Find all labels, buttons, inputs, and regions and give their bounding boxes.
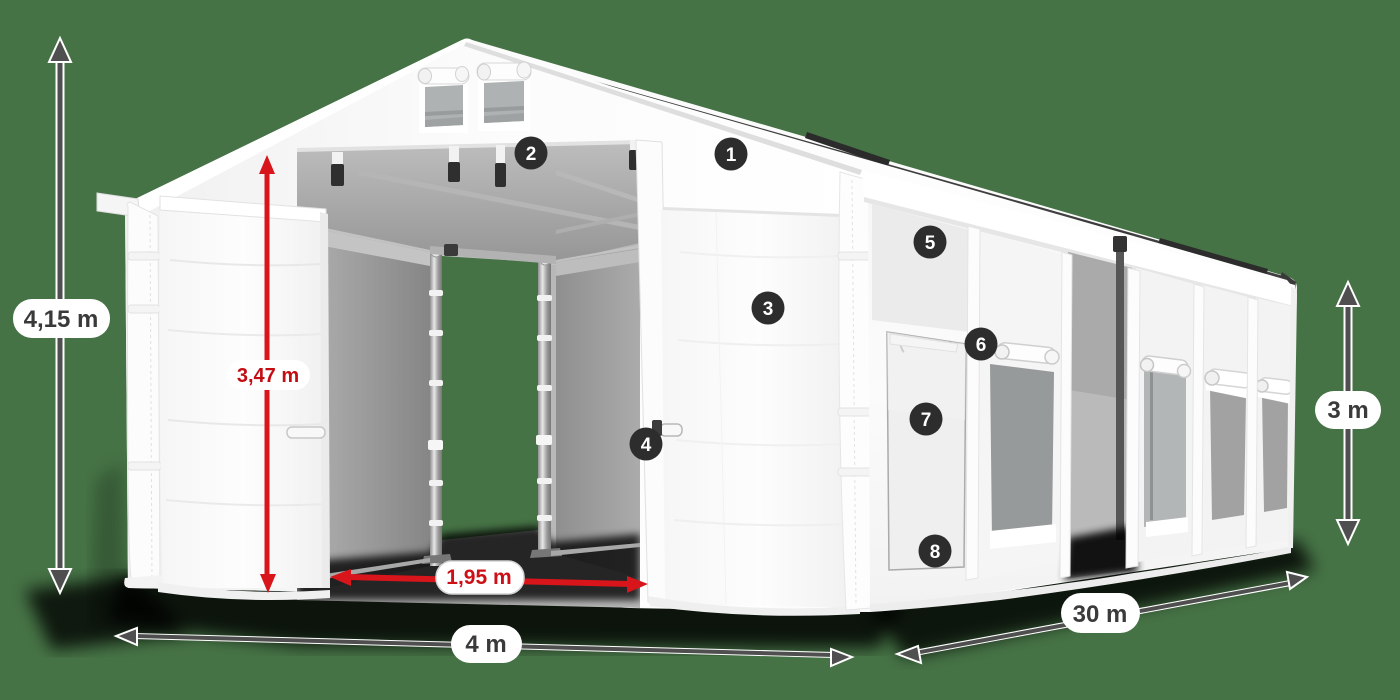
svg-text:3,47 m: 3,47 m: [237, 365, 299, 387]
svg-text:3 m: 3 m: [1327, 397, 1368, 424]
svg-text:8: 8: [930, 542, 941, 563]
svg-text:1,95 m: 1,95 m: [446, 566, 511, 589]
svg-text:6: 6: [976, 335, 987, 356]
svg-text:5: 5: [925, 233, 936, 254]
svg-text:4 m: 4 m: [465, 631, 506, 658]
svg-text:2: 2: [526, 144, 537, 165]
svg-text:4,15 m: 4,15 m: [24, 306, 99, 333]
svg-text:30 m: 30 m: [1073, 601, 1128, 628]
svg-text:1: 1: [726, 145, 737, 166]
svg-text:3: 3: [763, 299, 774, 320]
svg-text:4: 4: [641, 435, 652, 456]
svg-text:7: 7: [921, 410, 932, 431]
